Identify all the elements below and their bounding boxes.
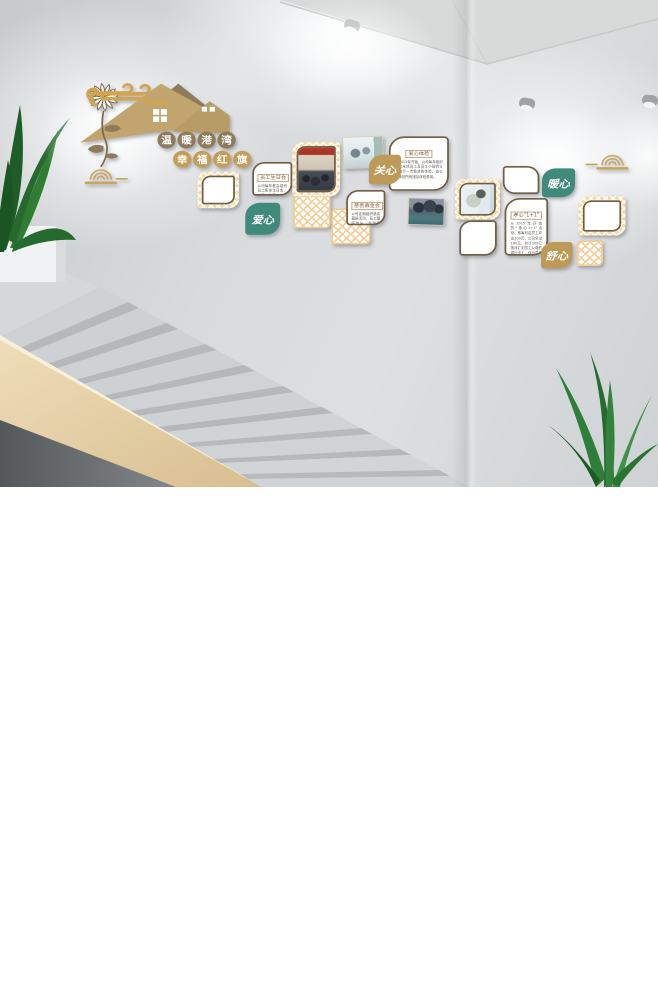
block-title: 孝心"1+1": [511, 212, 542, 220]
roof-window: [210, 107, 215, 112]
frame-inner: [202, 176, 235, 205]
roof-window: [161, 109, 167, 115]
roof-window: [153, 109, 159, 115]
title-char: 红: [217, 152, 227, 166]
sun-cloud-motif: [83, 164, 132, 188]
lattice-ornament: [577, 240, 603, 266]
block-head: 员工生日会: [257, 167, 287, 182]
block-xiaoxin: 孝心"1+1" 从2015年开始的"孝心1+1"活动，即每月由员工拿出100元，…: [505, 198, 549, 256]
block-birthday: 员工生日会 公司每年都会组织员工集体生日会，让每一位员工都能感受到企业大家庭的温…: [252, 162, 292, 196]
title-char: 福: [197, 152, 207, 166]
culture-wall-design: 温 暖 港 湾 幸 福 红 旗: [80, 82, 637, 290]
spotlight-3: [641, 94, 658, 109]
leaf-frame-empty: [459, 220, 496, 255]
sun-cloud-motif: [581, 149, 630, 173]
title-char-circle: 旗: [233, 151, 251, 168]
block-title: 慈善募金会: [351, 202, 382, 210]
title-char: 湾: [221, 133, 231, 147]
patterned-frame-empty: [579, 196, 626, 235]
tile-label: 暖心: [547, 175, 570, 190]
block-body: 从2015年开始的"孝心1+1"活动，即每月由员工拿出100元，公司拿出100元…: [511, 221, 542, 255]
lattice-ornament: [293, 196, 330, 229]
page: 温 暖 港 湾 幸 福 红 旗: [0, 0, 658, 991]
wall-design-installed: 温 暖 港 湾 幸 福 红 旗: [80, 82, 640, 292]
frame-inner: [583, 200, 621, 231]
title-char-circle: 港: [197, 132, 215, 149]
tile-guanxin: 关心: [369, 155, 401, 185]
tile-label: 关心: [374, 162, 397, 177]
tile-label: 爱心: [251, 211, 274, 226]
patterned-frame-empty: [197, 172, 239, 209]
title-char-circle: 暖: [177, 132, 195, 149]
block-head: 孝心"1+1": [511, 204, 542, 219]
block-head: 慈善募金会: [351, 195, 380, 210]
photo-frame-meeting: [292, 142, 340, 196]
block-charity: 慈善募金会 公司定期组织慈善募捐活动，员工踊跃参与，奉献爱心，传递温暖，回馈社会…: [346, 190, 385, 225]
title-char: 温: [161, 133, 171, 147]
leaf-frame-empty: [503, 166, 540, 194]
title-char-circle: 福: [193, 151, 211, 168]
title-char-circle: 温: [157, 132, 175, 149]
title-char-circle: 湾: [217, 132, 235, 149]
frame-inner: [297, 146, 336, 192]
tile-shuxin: 舒心: [541, 242, 572, 268]
meeting-photo: [298, 148, 334, 191]
title-char: 幸: [177, 152, 187, 166]
staircase-render: 温 暖 港 湾 幸 福 红 旗: [0, 0, 658, 487]
block-body: 公司定期组织慈善募捐活动，员工踊跃参与，奉献爱心，传递温暖，回馈社会。: [351, 212, 380, 226]
tile-label: 舒心: [545, 248, 568, 263]
title-char-circle: 红: [213, 151, 231, 168]
block-head: 爱心体检: [395, 143, 443, 158]
title-char: 港: [201, 133, 211, 147]
block-title: 员工生日会: [257, 174, 288, 182]
roof-window: [153, 116, 159, 122]
block-body: 公司每年都会组织员工集体生日会，让每一位员工都能感受到企业大家庭的温暖与关怀，增…: [257, 184, 287, 196]
ceiling: [280, 0, 658, 64]
title-char: 旗: [237, 152, 247, 166]
title-row-wennuangangwan: 温 暖 港 湾: [157, 132, 235, 149]
activity-photo: [408, 198, 445, 226]
cloud-motif: [80, 82, 174, 109]
frame-inner: [459, 183, 496, 216]
roof-window: [202, 107, 207, 112]
block-title: 爱心体检: [406, 150, 432, 158]
title-char: 暖: [181, 133, 191, 147]
tile-aixin: 爱心: [245, 203, 280, 235]
title-char-circle: 幸: [173, 151, 191, 168]
photo-frame-elderly: [455, 179, 500, 220]
elderly-visit-photo: [461, 184, 494, 214]
tile-nuanxin: 暖心: [542, 168, 575, 197]
title-row-xingfuhongqi: 幸 福 红 旗: [173, 151, 251, 168]
activity-photo-image: [409, 198, 445, 224]
plant-right: [548, 352, 658, 487]
flat-design-sheet: 温 暖 港 湾 幸 福 红 旗: [0, 487, 658, 991]
block-body: 从2015年开始，公司每年组织一次全体员工及员工小孩的父母进行一次免费的体检，由…: [395, 160, 443, 180]
roof-window: [161, 116, 167, 122]
